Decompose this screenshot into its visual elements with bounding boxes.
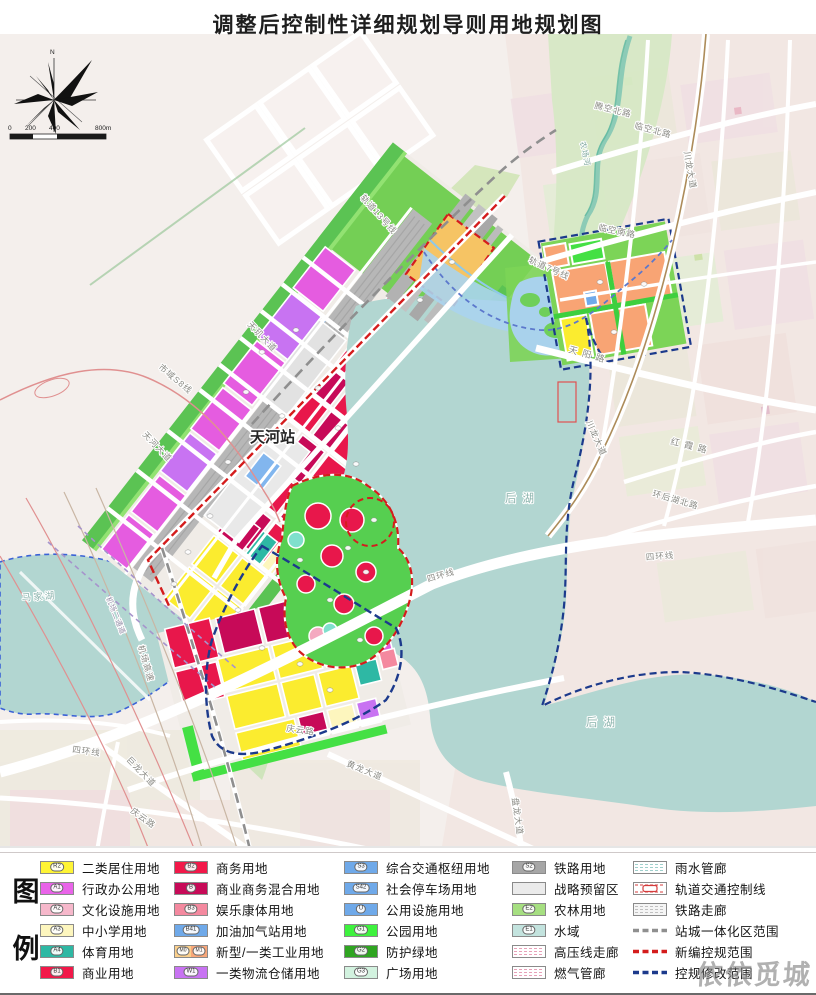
- legend-item: A3中小学用地: [40, 921, 147, 939]
- landuse-code: B2: [184, 863, 197, 872]
- legend-swatch: E2: [512, 903, 546, 916]
- legend-item-label: 商业商务混合用地: [216, 879, 320, 898]
- landuse-code: S42: [353, 884, 370, 893]
- landuse-code: G2: [354, 947, 368, 956]
- landuse-code: U: [356, 905, 366, 914]
- legend-swatch: A4: [40, 945, 74, 958]
- legend-item: B2商务用地: [174, 858, 268, 876]
- legend-item: A4体育用地: [40, 942, 134, 960]
- landuse-code: E1: [522, 926, 535, 935]
- legend-item-label: 公用设施用地: [386, 900, 464, 919]
- legend-item-label: 一类物流仓储用地: [216, 963, 320, 982]
- map-label: N: [50, 49, 55, 56]
- landuse-code: W1: [184, 968, 199, 977]
- legend-swatch: S3: [344, 861, 378, 874]
- legend-swatch: [633, 861, 667, 874]
- legend-item-label: 公园用地: [386, 921, 438, 940]
- legend-item-label: 铁路走廊: [675, 900, 727, 919]
- landuse-code: A1: [50, 884, 63, 893]
- legend-swatch: G3: [344, 966, 378, 979]
- legend: 图 例 R2二类居住用地A1行政办公用地A2文化设施用地A3中小学用地A4体育用…: [0, 852, 816, 995]
- legend-item-label: 中小学用地: [82, 921, 147, 940]
- legend-item-label: 社会停车场用地: [386, 879, 477, 898]
- legend-item: M0M1新型/一类工业用地: [174, 942, 324, 960]
- legend-item-label: 站城一体化区范围: [675, 921, 779, 940]
- watermark: 依依觅城: [695, 953, 814, 992]
- legend-swatch: U: [344, 903, 378, 916]
- legend-item-label: 二类居住用地: [82, 858, 160, 877]
- legend-swatch: [512, 882, 546, 895]
- legend-item: 铁路走廊: [633, 900, 727, 918]
- legend-item-label: 战略预留区: [554, 879, 619, 898]
- legend-item: 燃气管廊: [512, 963, 606, 981]
- map-label: 后湖: [505, 491, 540, 505]
- legend-item-label: 铁路用地: [554, 858, 606, 877]
- landuse-code: A3: [50, 926, 63, 935]
- legend-swatch: M0M1: [174, 945, 208, 958]
- legend-swatch: E1: [512, 924, 546, 937]
- legend-item: E1水域: [512, 921, 580, 939]
- map-label: 天河站: [250, 428, 295, 446]
- landuse-code: E2: [522, 905, 535, 914]
- map-label: 0: [8, 125, 12, 132]
- legend-item-label: 加油加气站用地: [216, 921, 307, 940]
- legend-swatch: [633, 966, 667, 979]
- legend-swatch: [633, 882, 667, 895]
- legend-item: 战略预留区: [512, 879, 619, 897]
- legend-item-label: 综合交通枢纽用地: [386, 858, 490, 877]
- map-label: 马家湖: [21, 590, 56, 604]
- legend-item: B3娱乐康体用地: [174, 900, 294, 918]
- legend-item: A1行政办公用地: [40, 879, 160, 897]
- legend-item: 站城一体化区范围: [633, 921, 779, 939]
- map-canvas: N0200400800m轨道13号线天玑大道市域S8线天河大道机场二通道机场高速…: [0, 0, 816, 858]
- scale-bar: [10, 134, 106, 139]
- landuse-code: A4: [50, 947, 63, 956]
- legend-item-label: 燃气管廊: [554, 963, 606, 982]
- legend-item-label: 体育用地: [82, 942, 134, 961]
- legend-swatch: [633, 903, 667, 916]
- legend-item: S42社会停车场用地: [344, 879, 477, 897]
- legend-item-label: 商务用地: [216, 858, 268, 877]
- legend-item: G2防护绿地: [344, 942, 438, 960]
- map-label: 四环线: [645, 550, 674, 562]
- legend-item: B41加油加气站用地: [174, 921, 307, 939]
- legend-item-label: 行政办公用地: [82, 879, 160, 898]
- legend-swatch: B3: [174, 903, 208, 916]
- legend-divider: [0, 852, 816, 853]
- legend-item: 高压线走廊: [512, 942, 619, 960]
- page-title: 调整后控制性详细规划导则用地规划图: [0, 9, 816, 39]
- legend-swatch: A2: [40, 903, 74, 916]
- legend-item-label: 广场用地: [386, 963, 438, 982]
- legend-item-label: 新型/一类工业用地: [216, 942, 324, 961]
- legend-item-label: 水域: [554, 921, 580, 940]
- landuse-code: B1: [50, 968, 63, 977]
- legend-item: R2二类居住用地: [40, 858, 160, 876]
- legend-item-label: 娱乐康体用地: [216, 900, 294, 919]
- legend-swatch: W1: [174, 966, 208, 979]
- legend-item-label: 高压线走廊: [554, 942, 619, 961]
- legend-swatch: B41: [174, 924, 208, 937]
- legend-item-label: 防护绿地: [386, 942, 438, 961]
- legend-swatch: G2: [344, 945, 378, 958]
- legend-item: S2铁路用地: [512, 858, 606, 876]
- legend-item-label: 农林用地: [554, 900, 606, 919]
- legend-swatch: B: [174, 882, 208, 895]
- legend-item: W1一类物流仓储用地: [174, 963, 320, 981]
- legend-item: 雨水管廊: [633, 858, 727, 876]
- legend-swatch: [633, 945, 667, 958]
- legend-swatch: B1: [40, 966, 74, 979]
- legend-item: G1公园用地: [344, 921, 438, 939]
- landuse-code: S2: [522, 863, 535, 872]
- map-label: 后湖: [586, 715, 621, 729]
- legend-swatch: A1: [40, 882, 74, 895]
- map-label: 400: [49, 125, 60, 132]
- legend-item-label: 商业用地: [82, 963, 134, 982]
- legend-swatch: R2: [40, 861, 74, 874]
- legend-swatch: S42: [344, 882, 378, 895]
- legend-item-label: 文化设施用地: [82, 900, 160, 919]
- legend-item: 轨道交通控制线: [633, 879, 766, 897]
- legend-item: G3广场用地: [344, 963, 438, 981]
- legend-heading: 图 例: [10, 864, 42, 978]
- legend-heading-char: 图: [10, 864, 42, 921]
- legend-item: B商业商务混合用地: [174, 879, 320, 897]
- legend-item: U公用设施用地: [344, 900, 464, 918]
- landuse-code: B: [186, 884, 196, 893]
- landuse-code: A2: [50, 905, 63, 914]
- legend-item: B1商业用地: [40, 963, 134, 981]
- legend-swatch: S2: [512, 861, 546, 874]
- plan-page: N0200400800m轨道13号线天玑大道市域S8线天河大道机场二通道机场高速…: [0, 0, 816, 993]
- legend-swatch: B2: [174, 861, 208, 874]
- legend-item: S3综合交通枢纽用地: [344, 858, 490, 876]
- legend-item-label: 雨水管廊: [675, 858, 727, 877]
- legend-swatch: G1: [344, 924, 378, 937]
- legend-item-label: 轨道交通控制线: [675, 879, 766, 898]
- legend-swatch: [633, 924, 667, 937]
- map-label: 200: [25, 125, 36, 132]
- landuse-code: G1: [354, 926, 368, 935]
- legend-swatch: [512, 945, 546, 958]
- landuse-code: B41: [183, 926, 200, 935]
- landuse-code: B3: [184, 905, 197, 914]
- landuse-code: G3: [354, 968, 368, 977]
- legend-swatch: A3: [40, 924, 74, 937]
- legend-swatch: [512, 966, 546, 979]
- landuse-code: R2: [50, 863, 64, 872]
- legend-item: E2农林用地: [512, 900, 606, 918]
- landuse-code: S3: [354, 863, 367, 872]
- legend-item: A2文化设施用地: [40, 900, 160, 918]
- map-label: 800m: [95, 125, 111, 132]
- legend-heading-char: 例: [10, 921, 42, 978]
